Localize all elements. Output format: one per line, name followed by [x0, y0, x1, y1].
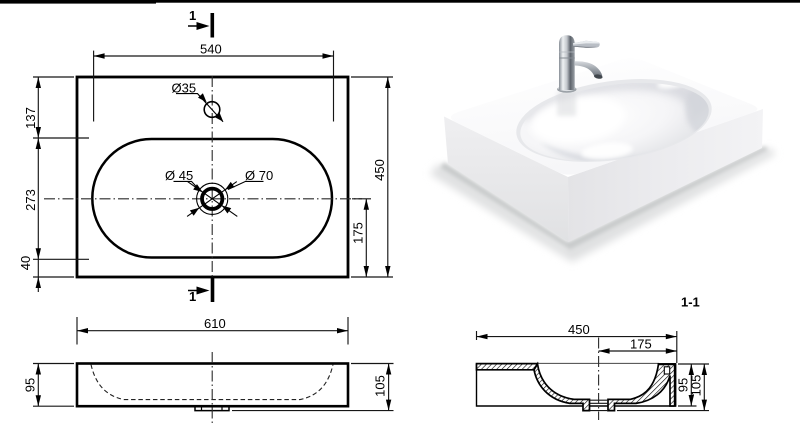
svg-text:1: 1: [189, 8, 196, 23]
svg-text:1: 1: [189, 289, 196, 304]
svg-text:Ø35: Ø35: [172, 81, 197, 96]
svg-text:40: 40: [18, 256, 33, 270]
svg-text:175: 175: [351, 222, 366, 244]
svg-text:1-1: 1-1: [681, 295, 700, 310]
svg-text:105: 105: [689, 375, 704, 397]
svg-text:610: 610: [204, 316, 226, 331]
svg-text:Ø 45: Ø 45: [165, 168, 193, 183]
svg-text:450: 450: [372, 159, 387, 181]
svg-text:137: 137: [23, 107, 38, 129]
svg-text:450: 450: [568, 322, 590, 337]
svg-text:540: 540: [200, 42, 222, 57]
svg-text:273: 273: [23, 189, 38, 211]
svg-text:105: 105: [372, 375, 387, 397]
svg-text:175: 175: [630, 337, 652, 352]
svg-text:95: 95: [23, 378, 38, 392]
svg-text:Ø 70: Ø 70: [245, 168, 273, 183]
